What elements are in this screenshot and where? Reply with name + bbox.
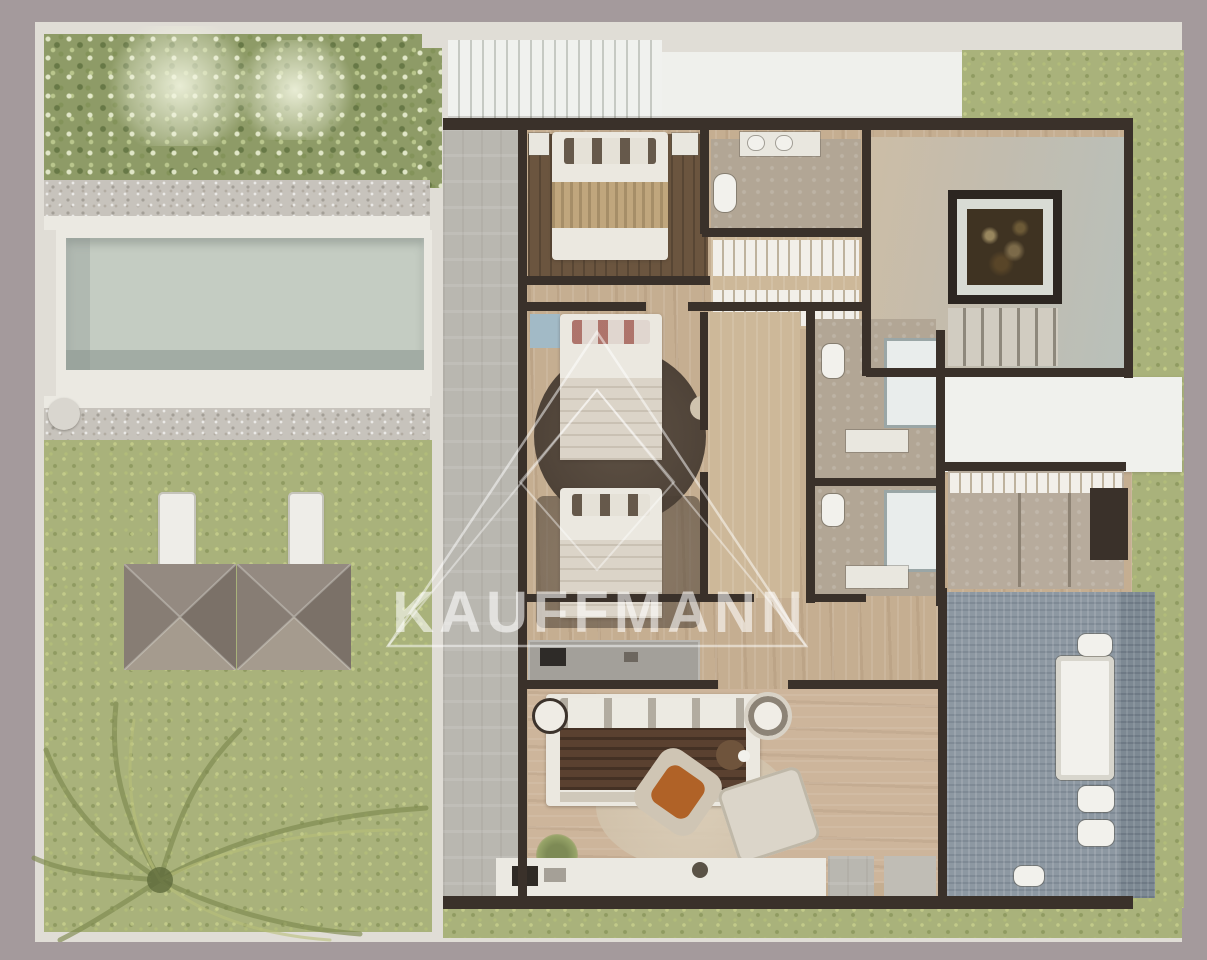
wall-bottom [443,896,1133,909]
armchair-cushion [647,761,708,822]
bedroom-1-bed [552,132,668,260]
terrace-column-a [828,856,874,898]
pool-deep-edge [66,350,424,370]
palm-tree-graphic [30,690,434,942]
sink-basin [776,136,792,150]
bedroom-3-pillows [572,494,650,516]
bathtub [1056,656,1114,780]
bedside-lamp-left [532,698,568,734]
master-toilet [1078,786,1114,812]
wall-top [443,118,1133,130]
bathroom-a-sink [846,430,908,452]
planter-pot-2 [692,862,708,878]
pergola-louvers [448,40,662,118]
sink-basin [748,136,764,150]
wall-corridor-a [700,312,708,430]
side-hedge [416,48,442,188]
bedside-lamp-right [744,692,792,740]
hedge-blossom [230,40,360,140]
roof-deck [662,52,962,118]
bedroom-2-pillows [572,320,650,344]
wardrobe-shelf-top [713,240,859,276]
master-pillows [560,698,746,728]
desk-object [624,652,638,662]
gravel-path-bottom [44,408,430,440]
bedroom-1-nightstand-left [529,133,549,155]
bedroom-1-pillows [564,138,656,164]
stepping-stone [48,398,80,430]
bedroom-1-nightstand-right [672,133,698,155]
master-bath-fixture [1078,634,1112,656]
terrace-column-b [884,856,936,898]
laptop [540,648,566,666]
en-suite-vanity [740,132,820,156]
pot-shadow [544,868,566,882]
corridor-floor [708,312,800,598]
hallway-cabinet [528,640,700,684]
wall-row3-a [518,594,754,602]
wall-master-north-b [788,680,940,689]
closet-divider [1018,493,1021,587]
palm-tree [30,690,434,942]
staircase [948,308,1058,366]
bathroom-b-shower [884,490,940,572]
wall-row2-a [518,302,646,311]
wall-bedroom1-south [518,276,710,285]
wall-bath-block-west [806,311,815,603]
wall-corridor-b [700,472,708,594]
gazebo-roof-2-graphic [237,564,351,670]
wall-master-north-a [518,680,718,689]
wall-bedroom1-bath [700,130,709,234]
toilet [714,174,736,212]
pool-end-shade [66,238,90,370]
gravel-path-top [44,180,430,216]
wall-row2-b [688,302,864,311]
walkway-top [44,216,430,230]
swimming-pool [66,238,424,370]
walkway-bottom [44,396,430,408]
wall-atrium-south [866,368,1132,377]
white-landing [945,377,1182,472]
atrium-tree [967,209,1043,285]
side-terrace [443,128,520,898]
bathroom-b-sink [846,566,908,588]
gazebo-roof-2 [237,564,351,670]
bathroom-b-toilet [822,494,844,526]
master-bidet [1078,820,1114,846]
bathroom-a-shower [884,338,940,428]
bedroom-1-blanket [552,182,668,228]
bedroom-3-blanket [560,540,662,618]
wall-closet-north [940,462,1126,471]
floor-plan-render: KAUFFMANN [0,0,1207,960]
mosaic-balcony [1119,592,1155,898]
gazebo-roof-1 [124,564,236,670]
wall-masterbath-west [938,588,947,898]
atrium-void-frame [948,190,1062,304]
grass-top-right [962,50,1128,118]
bedroom-2-bed [560,314,662,460]
wall-closet-block [1090,488,1128,560]
wall-row3-b [806,594,866,602]
shower-tray [1014,866,1044,886]
wall-atrium-west [862,128,871,376]
wall-bath-divider [812,478,940,486]
bedroom-2-bench [530,314,560,348]
cup [738,750,750,762]
sun-lounger-1 [158,492,196,568]
sun-lounger-2 [288,492,324,568]
bedroom-2-blanket [560,378,662,460]
grass-bottom-strip [443,906,1182,938]
wall-interior-left [518,128,527,896]
gazebo-roof-1-graphic [124,564,236,670]
bathroom-a-toilet [822,344,844,378]
wall-atrium-east [1124,128,1133,378]
rear-terrace [496,858,826,900]
closet-divider [1068,493,1071,587]
wall-bath-south [702,228,864,237]
